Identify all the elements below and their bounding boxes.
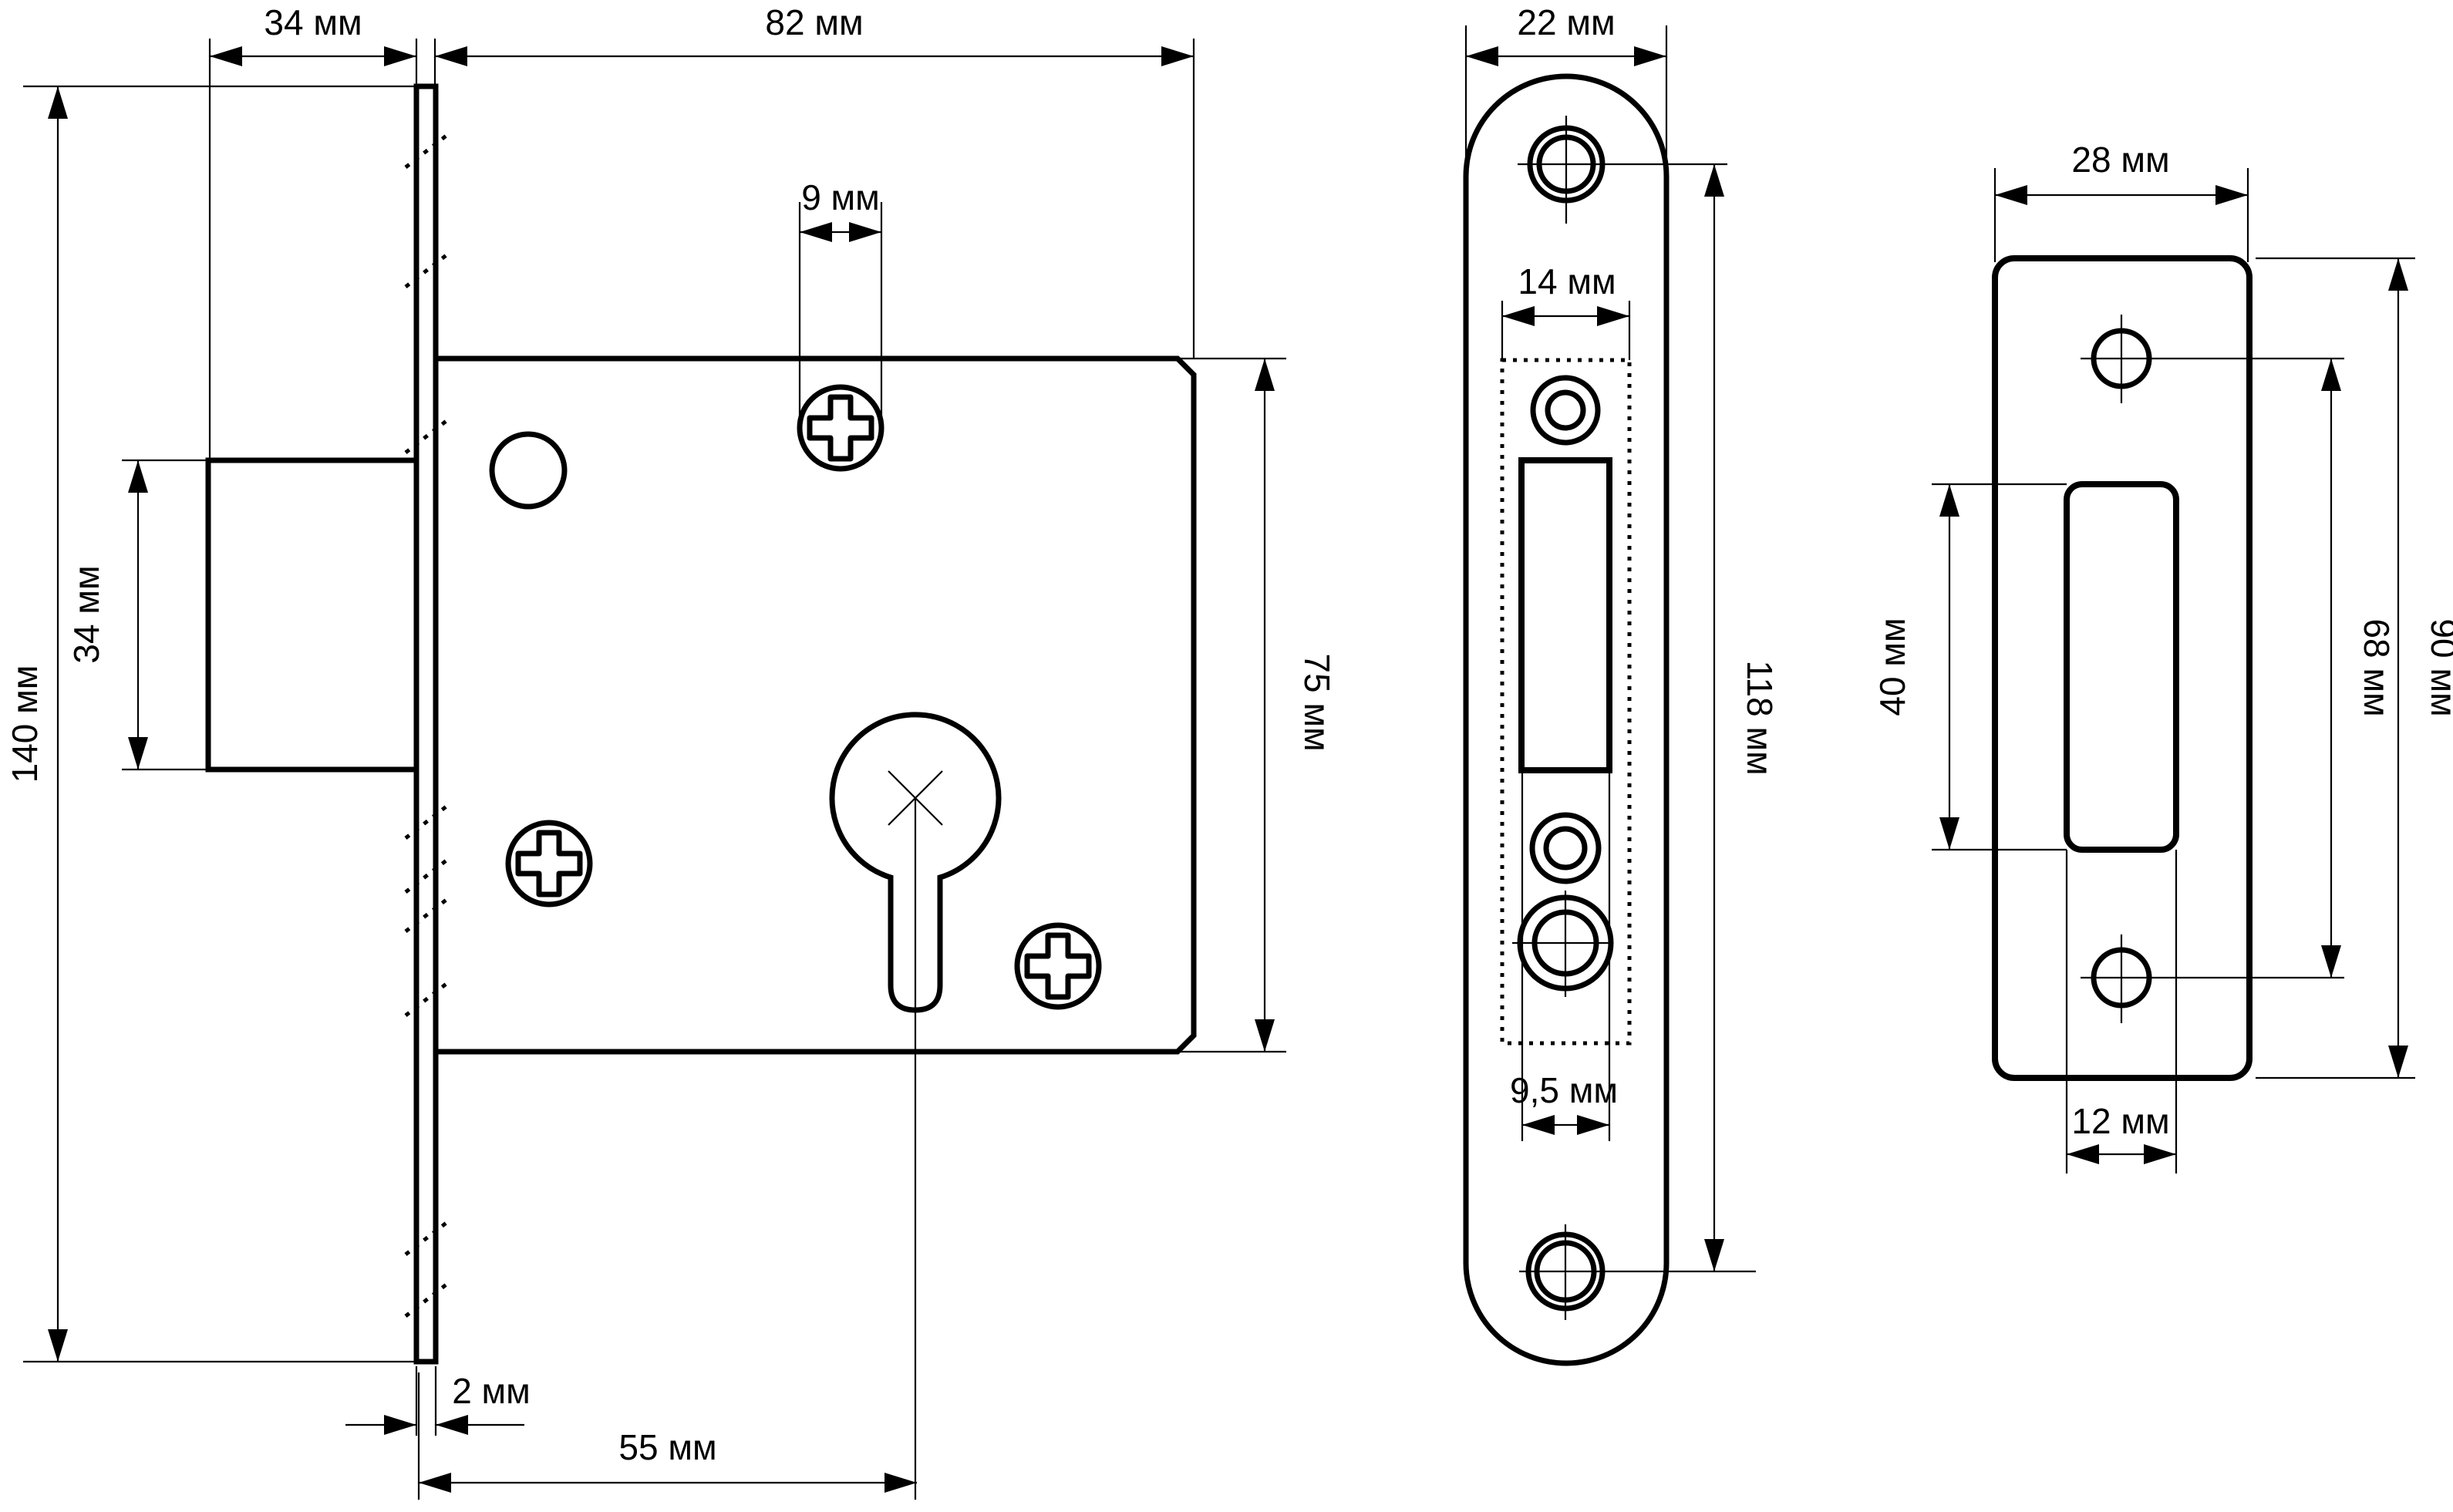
strike-plate-view: 28 мм 40 мм 68 мм 90 мм	[1872, 140, 2453, 1174]
arrowhead	[210, 46, 242, 66]
faceplate-view: 22 мм 14 мм 118 мм 9,5 мм	[1466, 2, 1780, 1363]
arrowhead	[435, 46, 467, 66]
dim-label: 68 мм	[2357, 618, 2397, 716]
arrowhead	[419, 1473, 451, 1493]
arrowhead	[800, 222, 832, 242]
dim-label: 118 мм	[1740, 660, 1780, 775]
dim-label: 34 мм	[264, 2, 362, 42]
bolt-slot	[1521, 460, 1609, 770]
dim-label: 34 мм	[66, 565, 106, 663]
dim-strike-width: 28 мм	[1995, 140, 2248, 262]
strike-cutout	[2067, 484, 2176, 850]
arrowhead	[849, 222, 881, 242]
dim-faceplate-thickness: 2 мм	[345, 1366, 531, 1436]
arrowhead	[384, 1415, 416, 1435]
arrowhead	[384, 46, 416, 66]
arrowhead	[1939, 817, 1959, 850]
arrowhead	[1255, 1019, 1275, 1052]
dim-label: 2 мм	[452, 1371, 531, 1411]
arrowhead	[2067, 1144, 2099, 1164]
arrowhead	[2321, 359, 2341, 391]
dim-body-height: 75 мм	[1180, 359, 1337, 1052]
dim-strike-height: 90 мм	[2256, 258, 2453, 1078]
arrowhead	[1466, 46, 1498, 66]
arrowhead	[48, 86, 68, 119]
dim-label: 14 мм	[1518, 261, 1616, 301]
arrowhead	[1634, 46, 1666, 66]
phillips-screw-top	[800, 387, 881, 469]
arrowhead	[128, 460, 148, 493]
dim-label: 28 мм	[2071, 140, 2169, 180]
dim-label: 12 мм	[2071, 1101, 2169, 1141]
dim-label: 82 мм	[765, 2, 863, 42]
arrowhead	[2144, 1144, 2176, 1164]
arrowhead	[2321, 945, 2341, 978]
dim-label: 9,5 мм	[1510, 1070, 1618, 1110]
phillips-screw-left	[508, 823, 590, 904]
arrowhead	[1704, 1239, 1724, 1271]
phillips-screw-right	[1017, 925, 1099, 1007]
arrowhead	[128, 737, 148, 769]
dim-label: 40 мм	[1872, 618, 1912, 716]
dim-label: 55 мм	[618, 1427, 716, 1467]
dim-bolt-protrusion: 34 мм	[210, 2, 416, 460]
dim-label: 90 мм	[2424, 618, 2453, 716]
arrowhead	[1255, 359, 1275, 391]
arrowhead	[2215, 185, 2248, 205]
arrowhead	[48, 1329, 68, 1362]
mortise-lock-drawing: 34 мм 82 мм 9 мм 140 мм	[0, 0, 2453, 1512]
arrowhead	[2388, 258, 2408, 291]
side-view: 34 мм 82 мм 9 мм 140 мм	[5, 2, 1337, 1500]
dim-label: 75 мм	[1297, 653, 1337, 751]
dim-label: 22 мм	[1517, 2, 1615, 42]
arrowhead	[1161, 46, 1194, 66]
deadbolt	[208, 460, 416, 769]
faceplate-edge	[416, 86, 436, 1362]
arrowhead	[1939, 484, 1959, 517]
arrowhead	[2388, 1046, 2408, 1078]
dim-bolt-height: 34 мм	[66, 460, 208, 769]
arrowhead	[1995, 185, 2027, 205]
arrowhead	[436, 1415, 468, 1435]
arrowhead	[1704, 164, 1724, 197]
dim-label: 140 мм	[5, 665, 45, 783]
arrowhead	[884, 1473, 917, 1493]
dim-label: 9 мм	[801, 177, 880, 217]
technical-drawing-page: 34 мм 82 мм 9 мм 140 мм	[0, 0, 2453, 1512]
